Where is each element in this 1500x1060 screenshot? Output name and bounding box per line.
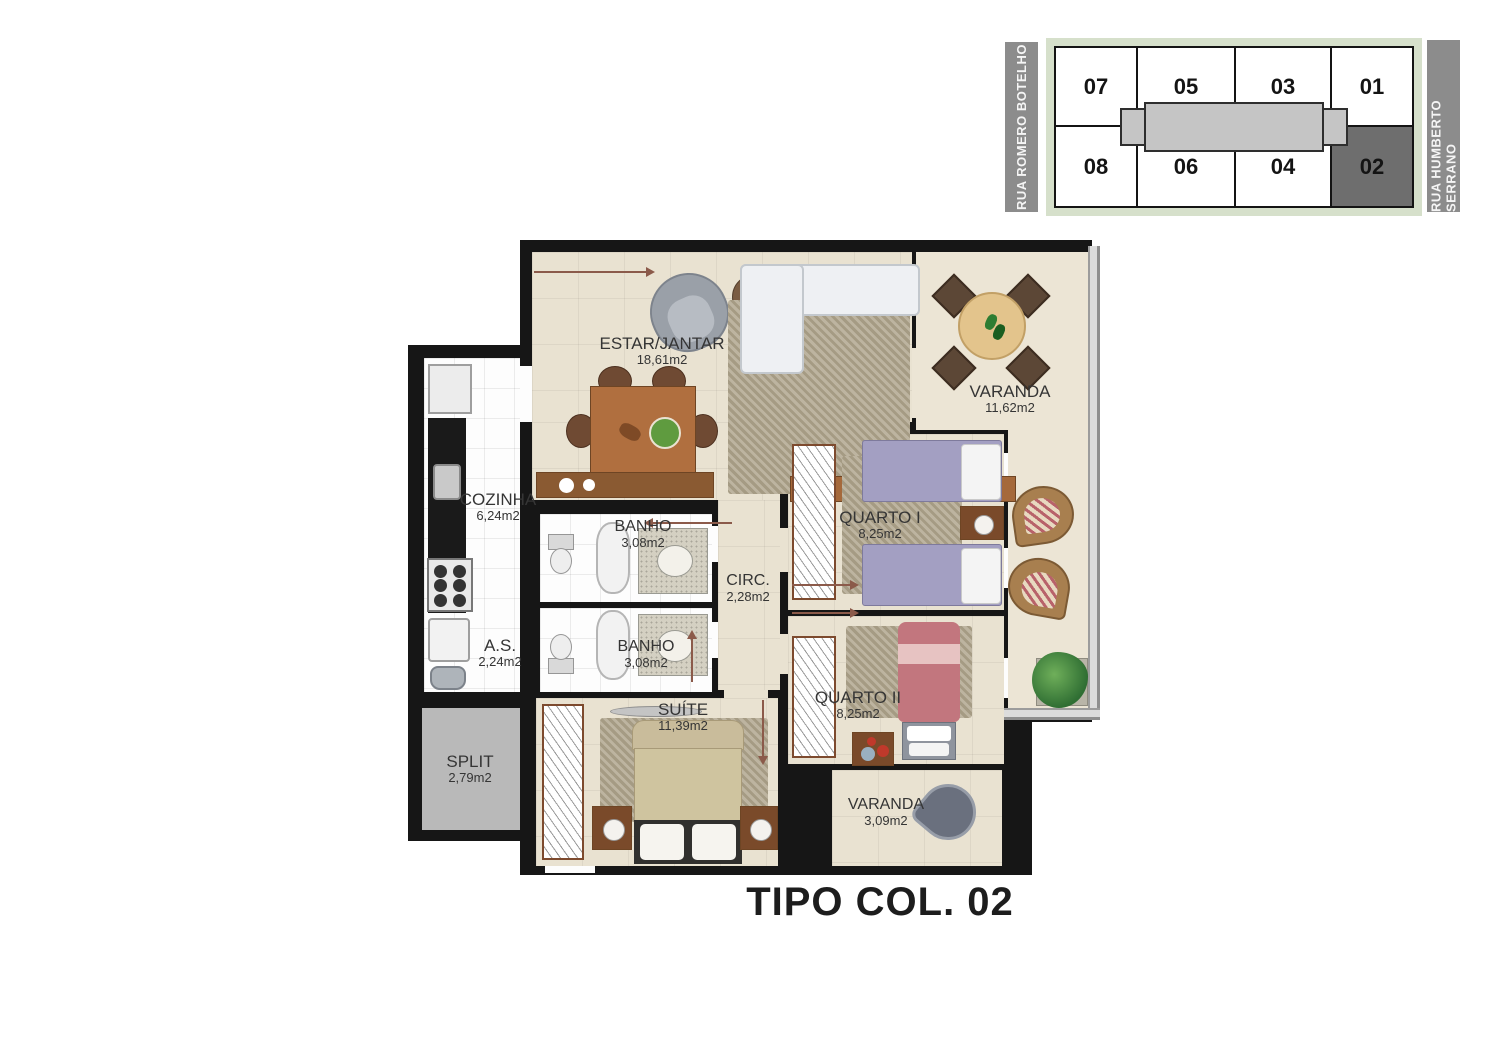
key-plan: RUA ROMERO BOTELHO 07 05 03 01 08 06 04 … xyxy=(1000,36,1464,220)
double-bed xyxy=(632,720,744,866)
opening-kitchen xyxy=(520,366,532,422)
door-arrow xyxy=(534,271,646,273)
varanda-table xyxy=(958,292,1026,360)
street-label-right: RUA HUMBERTO SERRANO xyxy=(1427,40,1460,212)
opening-banho2-door xyxy=(712,622,718,658)
floor-plan: ESTAR/JANTAR18,61m2 VARANDA11,62m2 COZIN… xyxy=(400,238,1120,883)
single-bed xyxy=(862,440,1002,502)
door-arrow xyxy=(691,638,693,682)
page: RUA ROMERO BOTELHO 07 05 03 01 08 06 04 … xyxy=(0,0,1500,1060)
label-estar: ESTAR/JANTAR18,61m2 xyxy=(600,334,725,368)
opening-quarto1-door xyxy=(780,528,788,572)
window-quarto2 xyxy=(1004,658,1008,698)
label-circ: CIRC.2,28m2 xyxy=(726,572,770,604)
label-suite: SUÍTE11,39m2 xyxy=(658,700,708,734)
wardrobe-quarto1 xyxy=(792,444,836,600)
label-banho1: BANHO3,08m2 xyxy=(615,518,672,550)
opening-varanda-door xyxy=(912,348,916,418)
key-plan-building: 07 05 03 01 08 06 04 02 xyxy=(1054,46,1414,208)
window-suite xyxy=(545,866,595,873)
door-arrow xyxy=(792,612,850,614)
sofa-chaise xyxy=(740,264,804,374)
nightstand xyxy=(960,506,1004,540)
toilet-tank xyxy=(548,658,574,674)
toilet xyxy=(550,634,572,660)
sideboard xyxy=(536,472,714,498)
label-quarto2: QUARTO II8,25m2 xyxy=(815,688,901,722)
laundry-tub xyxy=(430,666,466,690)
washing-machine xyxy=(428,618,470,662)
dining-table xyxy=(590,386,696,474)
nightstand xyxy=(852,732,894,766)
plan-title: TIPO COL. 02 xyxy=(746,880,1014,925)
opening-quarto2-door xyxy=(780,634,788,674)
label-banho2: BANHO3,08m2 xyxy=(618,638,675,670)
varanda-railing-right xyxy=(1088,246,1100,720)
potted-plant xyxy=(1032,652,1090,710)
label-as: A.S.2,24m2 xyxy=(478,636,521,670)
stove xyxy=(427,558,473,612)
single-bed xyxy=(862,544,1002,606)
key-plan-building-band: 07 05 03 01 08 06 04 02 xyxy=(1046,38,1422,216)
nightstand xyxy=(592,806,632,850)
opening-banho1-door xyxy=(712,526,718,562)
kitchen-sink xyxy=(433,464,461,500)
opening-suite-door xyxy=(724,690,768,698)
nightstand xyxy=(740,806,778,850)
label-cozinha: COZINHA6,24m2 xyxy=(460,490,537,524)
fridge xyxy=(428,364,472,414)
single-bed-rose xyxy=(898,622,960,762)
wardrobe-suite xyxy=(542,704,584,860)
label-varanda2: VARANDA3,09m2 xyxy=(848,796,924,828)
fruit-bowl xyxy=(649,417,681,449)
street-label-left: RUA ROMERO BOTELHO xyxy=(1005,42,1038,212)
label-quarto1: QUARTO I8,25m2 xyxy=(839,508,921,542)
corridor-center xyxy=(1144,102,1324,152)
door-arrow xyxy=(762,700,764,756)
door-arrow xyxy=(792,584,850,586)
label-split: SPLIT2,79m2 xyxy=(446,752,493,786)
toilet xyxy=(550,548,572,574)
label-varanda: VARANDA11,62m2 xyxy=(970,382,1051,416)
